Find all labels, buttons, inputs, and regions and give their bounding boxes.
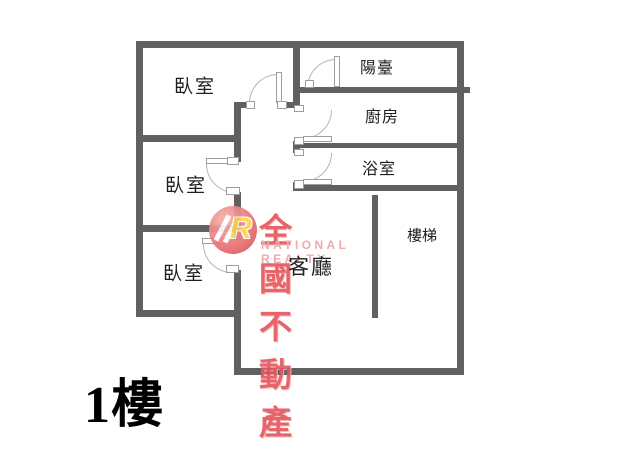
wall-bedroom1-bedroom2 bbox=[136, 135, 241, 142]
kitchen-door-arc bbox=[303, 110, 332, 139]
wall-outer-left bbox=[136, 41, 143, 317]
wall-bathroom-bottom bbox=[293, 185, 464, 191]
bedroom2-door-jamb-top bbox=[227, 157, 239, 165]
room-label-kitchen: 廚房 bbox=[365, 103, 399, 127]
realty-logo-icon: R bbox=[209, 206, 257, 254]
wall-right-section-upper bbox=[293, 41, 300, 107]
room-label-stairs: 樓梯 bbox=[407, 225, 437, 246]
bathroom-door-leaf bbox=[303, 179, 332, 185]
bedroom3-door-jamb-bottom bbox=[226, 265, 239, 273]
room-label-bathroom: 浴室 bbox=[362, 155, 396, 179]
wall-stairs bbox=[372, 195, 378, 318]
bedroom2-door-jamb-bottom bbox=[226, 187, 240, 195]
wall-central-upper bbox=[234, 102, 241, 162]
wall-left-section-bottom bbox=[136, 310, 241, 317]
room-label-living-room: 客廳 bbox=[288, 251, 334, 281]
bathroom-door-jamb-bottom bbox=[294, 180, 304, 189]
bathroom-door-arc bbox=[303, 153, 332, 182]
room-label-bedroom-bottom: 臥室 bbox=[163, 259, 205, 286]
balcony-door-jamb-left bbox=[305, 80, 314, 88]
floor-plan-canvas: R 全國不動產 NATIONAL REALTY 臥室 臥室 臥室 陽臺 廚房 浴… bbox=[0, 0, 638, 460]
room-label-bedroom-middle: 臥室 bbox=[165, 171, 207, 198]
floor-label: 1樓 bbox=[84, 362, 164, 437]
logo-letter: R bbox=[230, 212, 252, 246]
bedroom1-door-jamb-left bbox=[246, 101, 255, 109]
kitchen-door-leaf bbox=[303, 136, 332, 142]
room-label-bedroom-top: 臥室 bbox=[174, 72, 216, 99]
kitchen-door-jamb-bottom bbox=[294, 137, 304, 145]
wall-central-lower bbox=[234, 270, 241, 368]
bedroom1-door-arc bbox=[249, 74, 278, 103]
bedroom1-door-leaf bbox=[276, 72, 282, 103]
wall-outer-top bbox=[136, 41, 464, 48]
room-label-balcony: 陽臺 bbox=[360, 54, 394, 78]
bedroom1-door-jamb-right bbox=[277, 101, 287, 109]
wall-kitchen-bathroom bbox=[300, 143, 457, 148]
balcony-door-leaf bbox=[334, 56, 340, 87]
